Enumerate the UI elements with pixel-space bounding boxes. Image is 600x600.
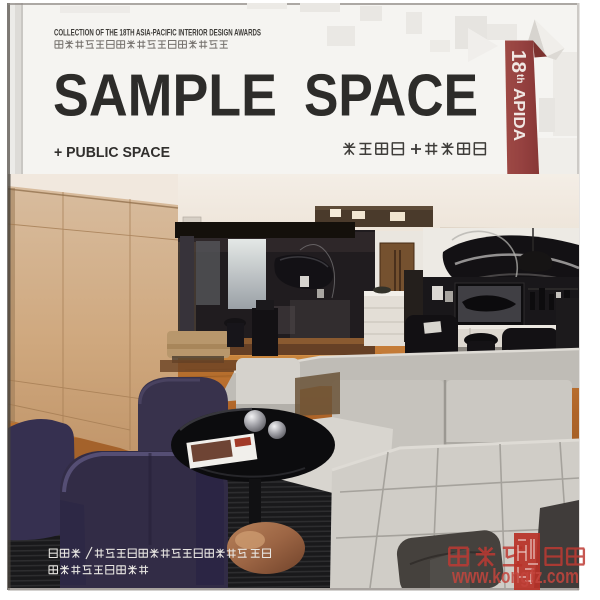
svg-text:www.kongfz.com: www.kongfz.com <box>451 566 579 588</box>
svg-text:SPACE: SPACE <box>304 63 478 129</box>
svg-text:+ PUBLIC SPACE: + PUBLIC SPACE <box>54 145 170 161</box>
svg-text:th: th <box>514 74 525 83</box>
svg-text:SAMPLE: SAMPLE <box>53 63 277 129</box>
svg-text:APIDA: APIDA <box>510 88 527 141</box>
svg-text:COLLECTION OF THE 18TH ASIA-PA: COLLECTION OF THE 18TH ASIA-PACIFIC INTE… <box>54 28 261 38</box>
svg-text:18: 18 <box>507 50 529 73</box>
